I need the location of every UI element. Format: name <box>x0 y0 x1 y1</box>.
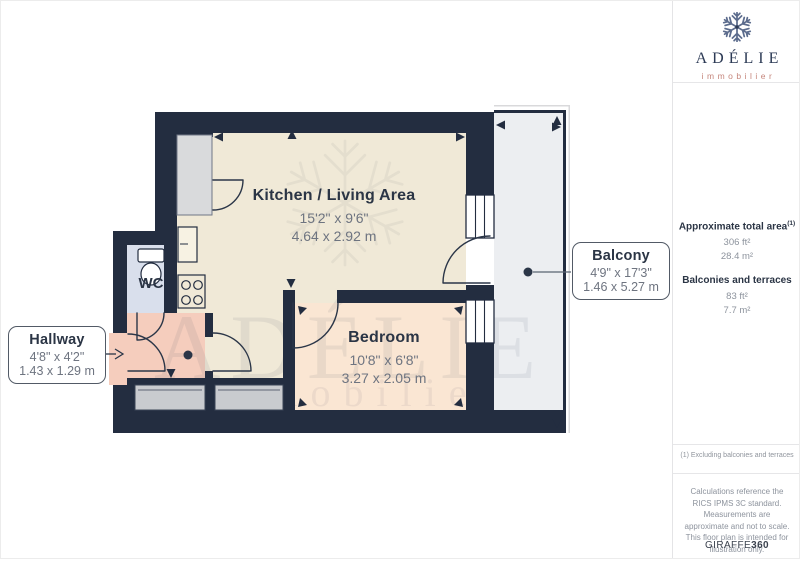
divider <box>673 82 800 83</box>
kitchen-name: Kitchen / Living Area <box>214 186 454 206</box>
brand-logo: ADÉLIE immobilier <box>673 12 800 81</box>
hallway-dims-metric: 1.43 x 1.29 m <box>9 364 105 378</box>
divider <box>673 444 800 445</box>
balconies-metric: 7.7 m² <box>673 305 800 316</box>
total-area-label: Approximate total area(1) <box>673 220 800 232</box>
hallway-dims-imperial: 4'8" x 4'2" <box>9 350 105 364</box>
wardrobe <box>135 385 205 410</box>
logo-snowflake-icon <box>722 12 752 42</box>
bedroom-label: Bedroom 10'8" x 6'8" 3.27 x 2.05 m <box>286 328 482 387</box>
kitchen-counter <box>177 135 212 215</box>
wc-label: WC <box>136 275 166 292</box>
kitchen-label: Kitchen / Living Area 15'2" x 9'6" 4.64 … <box>214 186 454 245</box>
hallway-room-dot <box>184 351 193 360</box>
bedroom-name: Bedroom <box>286 328 482 348</box>
total-area-imperial: 306 ft² <box>673 237 800 248</box>
bedroom-dims-imperial: 10'8" x 6'8" <box>286 352 482 370</box>
hallway-callout: Hallway 4'8" x 4'2" 1.43 x 1.29 m <box>8 326 106 384</box>
hallway-name: Hallway <box>9 332 105 348</box>
giraffe360-credit: GIRAFFE360 <box>673 540 800 551</box>
brand-name: ADÉLIE <box>673 50 800 68</box>
stove <box>178 275 205 308</box>
windows <box>466 195 494 343</box>
floorplan-page: ADÉLIE immobilier <box>0 0 800 566</box>
info-sidebar: ADÉLIE immobilier Approximate total area… <box>672 0 800 558</box>
balcony-callout: Balcony 4'9" x 17'3" 1.46 x 5.27 m <box>572 242 670 300</box>
balconies-label: Balconies and terraces <box>673 275 800 286</box>
kitchen-dims-imperial: 15'2" x 9'6" <box>214 210 454 228</box>
footnote-marker: (1) <box>787 220 795 227</box>
balcony-dims-metric: 1.46 x 5.27 m <box>573 280 669 294</box>
balcony-room-dot <box>524 268 533 277</box>
bedroom-dims-metric: 3.27 x 2.05 m <box>286 370 482 388</box>
area-footnote: (1) Excluding balconies and terraces <box>673 452 800 459</box>
brand-tagline: immobilier <box>673 71 800 81</box>
divider <box>673 473 800 474</box>
balcony-dims-imperial: 4'9" x 17'3" <box>573 266 669 280</box>
balconies-imperial: 83 ft² <box>673 291 800 302</box>
area-stats: Approximate total area(1) 306 ft² 28.4 m… <box>673 220 800 316</box>
entrance-threshold <box>109 333 127 385</box>
total-area-metric: 28.4 m² <box>673 251 800 262</box>
kitchen-dims-metric: 4.64 x 2.92 m <box>214 228 454 246</box>
wardrobe <box>215 385 283 410</box>
window <box>466 195 494 238</box>
balcony-name: Balcony <box>573 248 669 264</box>
